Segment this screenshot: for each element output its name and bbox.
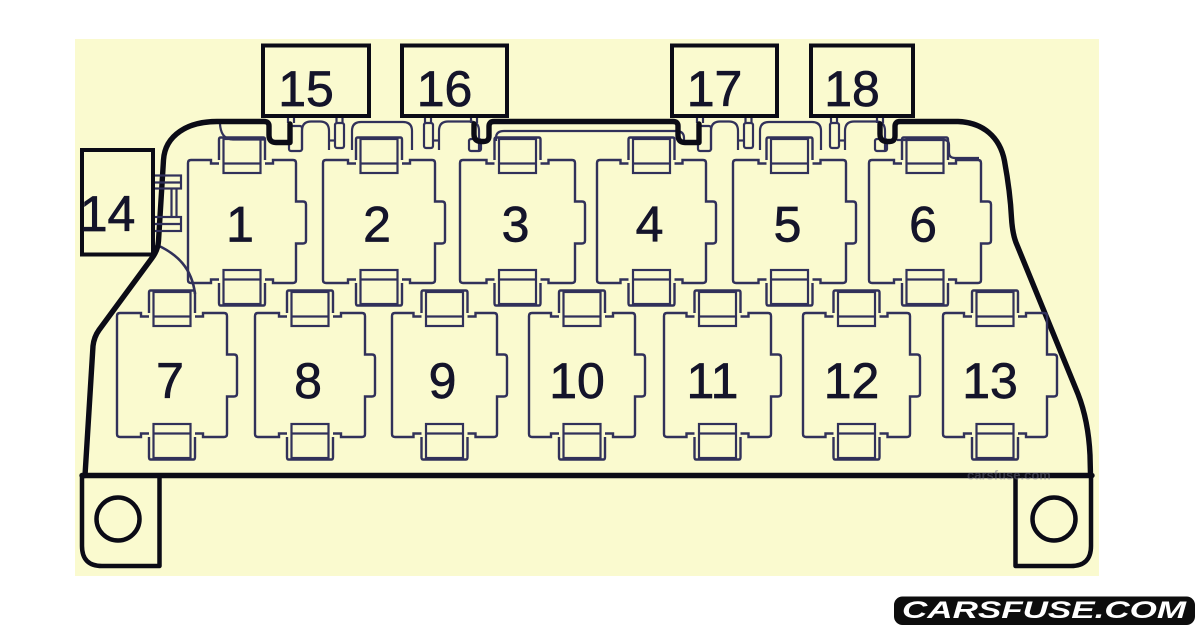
svg-text:carsfuse.com: carsfuse.com [967,468,1051,483]
svg-text:9: 9 [429,353,457,409]
svg-text:12: 12 [824,353,880,409]
svg-text:CARSFUSE.COM: CARSFUSE.COM [902,597,1187,624]
svg-text:15: 15 [278,61,334,117]
svg-text:11: 11 [687,353,739,409]
svg-text:10: 10 [549,353,605,409]
svg-text:6: 6 [909,197,937,253]
svg-text:18: 18 [824,61,880,117]
svg-text:3: 3 [502,197,530,253]
svg-text:1: 1 [226,197,254,253]
svg-text:13: 13 [962,353,1018,409]
svg-text:16: 16 [417,61,473,117]
svg-text:17: 17 [687,61,743,117]
svg-text:14: 14 [80,186,136,242]
svg-text:2: 2 [363,197,391,253]
svg-text:5: 5 [774,197,802,253]
svg-text:8: 8 [294,353,322,409]
svg-text:7: 7 [156,353,184,409]
svg-text:4: 4 [636,197,664,253]
